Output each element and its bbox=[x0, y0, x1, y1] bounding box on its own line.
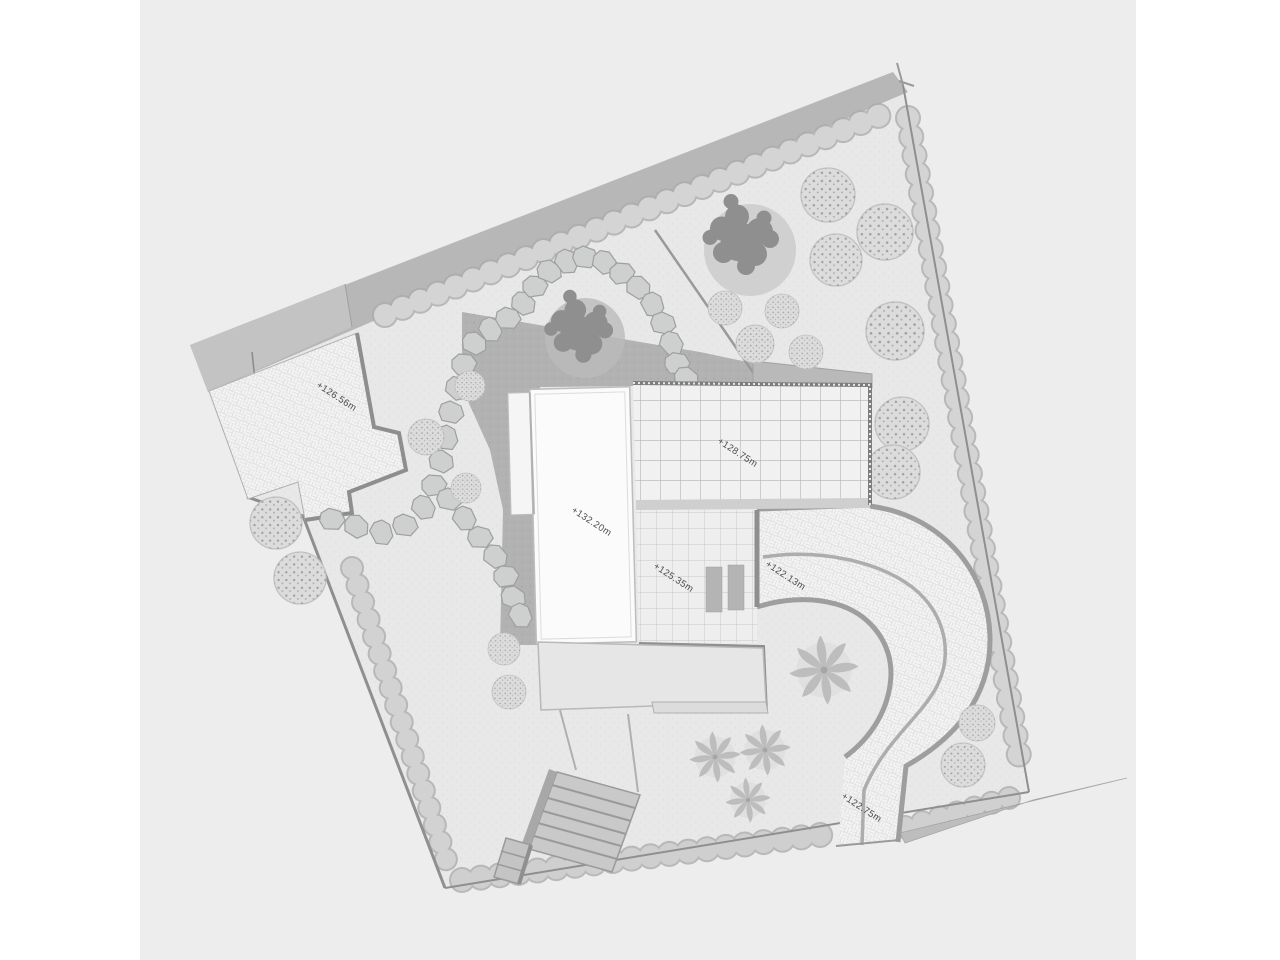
glass-roof bbox=[633, 383, 870, 510]
site-plan-page: +126.56m +132.20m +128.75m +125.35m +122… bbox=[0, 0, 1280, 960]
site-plan-drawing: +126.56m +132.20m +128.75m +125.35m +122… bbox=[0, 0, 1280, 960]
